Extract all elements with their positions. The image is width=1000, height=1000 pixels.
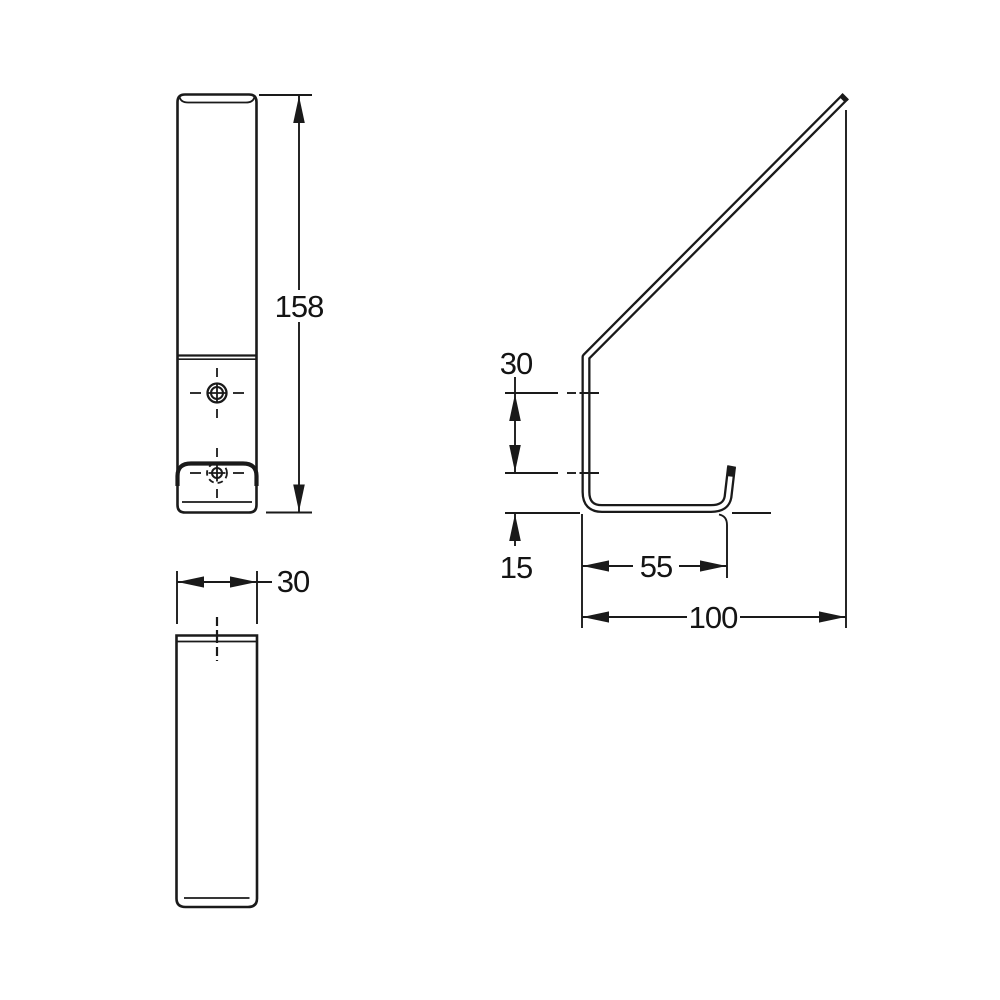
dim-label-overall-depth: 100 [689,600,738,635]
arrow-up-icon [509,514,521,541]
technical-drawing-canvas: 158 30 30 [0,0,1000,1000]
arrow-left-icon [178,576,205,587]
dim-label-base-height: 15 [500,550,532,585]
arrow-right-icon [819,611,846,622]
arrow-left-icon [583,611,610,622]
dim-label-inner-depth: 55 [640,549,672,584]
front-view [178,95,257,513]
dim-label-overall-width: 30 [277,564,310,599]
side-profile-view [586,94,848,509]
dimension-overall-width: 30 [177,564,310,624]
bottom-view-outline [177,636,258,908]
arrow-up-icon [293,96,305,123]
arrow-left-icon [583,560,610,571]
dimension-overall-depth: 100 [582,110,846,635]
hook-profile-outer [586,97,845,509]
wall-hook-technical-drawing: 158 30 30 [0,0,1000,1000]
arrow-down-icon [509,445,521,472]
arrow-up-icon [509,394,521,421]
arrow-right-icon [700,560,727,571]
dimension-base-height: 15 [500,513,771,585]
bottom-view [177,617,258,907]
hook-profile-core [586,100,842,509]
dim-label-overall-height: 158 [275,289,324,324]
dimension-overall-height: 158 [259,95,323,513]
arrow-down-icon [293,485,305,512]
dim-label-hook-drop: 30 [500,346,533,381]
arrow-right-icon [230,576,257,587]
